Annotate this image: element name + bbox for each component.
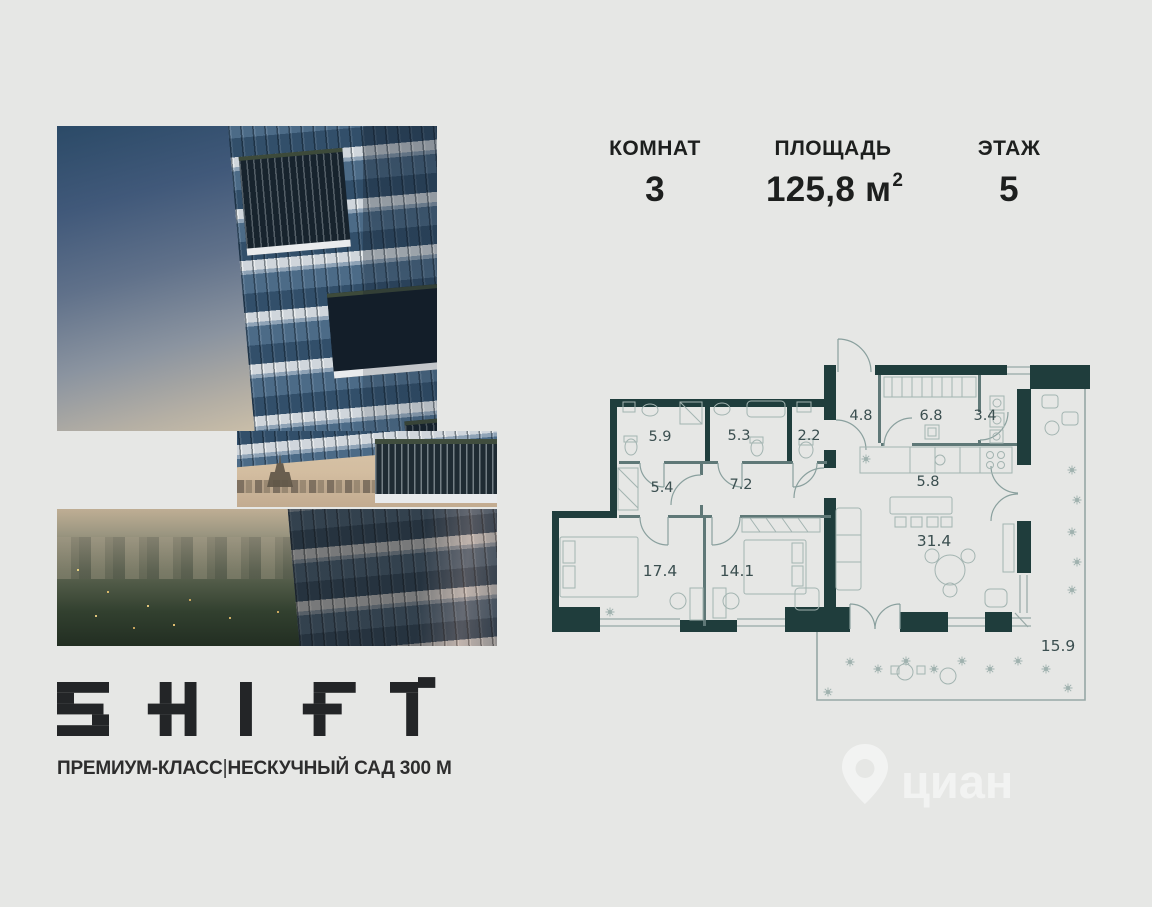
room-label-kitchenzone: 5.8 bbox=[916, 474, 939, 490]
watermark-text: циан bbox=[901, 755, 1013, 808]
room-label-bedroom-1: 17.4 bbox=[643, 562, 678, 580]
walls bbox=[552, 365, 1090, 632]
room-label-corridor-1: 5.4 bbox=[650, 480, 673, 496]
tagline-class: ПРЕМИУМ-КЛАСС bbox=[57, 758, 222, 780]
shift-logo bbox=[57, 676, 437, 736]
room-label-wc: 2.2 bbox=[797, 428, 820, 444]
cian-watermark: циан bbox=[835, 738, 1095, 822]
room-label-hall: 4.8 bbox=[849, 408, 872, 424]
room-label-terrace: 15.9 bbox=[1041, 637, 1076, 655]
room-label-bedroom-2: 14.1 bbox=[720, 562, 755, 580]
room-label-bathroom-1: 5.9 bbox=[648, 429, 671, 445]
room-label-laundry: 3.4 bbox=[973, 408, 996, 424]
listing-card: КОМНАТ 3 ПЛОЩАДЬ 125,8 м2 ЭТАЖ 5 bbox=[0, 0, 1152, 907]
room-label-living: 31.4 bbox=[917, 532, 952, 550]
logo-tagline: ПРЕМИУМ-КЛАСС | НЕСКУЧНЫЙ САД 300 М bbox=[57, 757, 435, 780]
room-label-corridor-2: 7.2 bbox=[729, 477, 752, 493]
room-label-bathroom-2: 5.3 bbox=[727, 428, 750, 444]
pin-icon bbox=[842, 744, 888, 804]
furniture bbox=[560, 377, 1078, 684]
room-label-kitchen: 6.8 bbox=[919, 408, 942, 424]
tagline-location: НЕСКУЧНЫЙ САД 300 М bbox=[227, 758, 451, 780]
